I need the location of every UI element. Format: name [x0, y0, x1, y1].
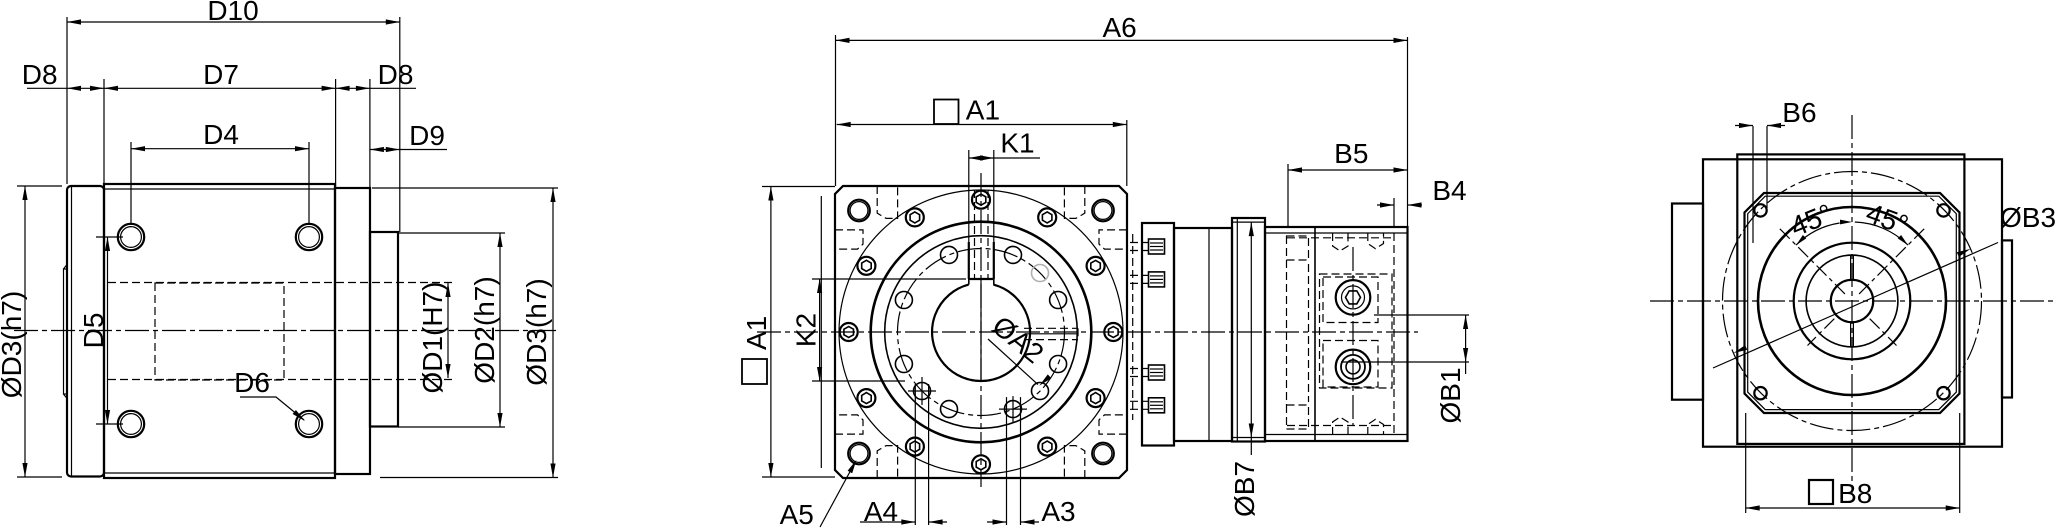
- svg-text:ØB7: ØB7: [1229, 461, 1260, 517]
- svg-text:D4: D4: [203, 119, 239, 150]
- svg-text:K2: K2: [791, 313, 822, 347]
- svg-text:ØB1: ØB1: [1435, 367, 1466, 423]
- svg-text:A4: A4: [864, 496, 898, 527]
- svg-text:D8: D8: [378, 59, 414, 90]
- svg-text:A1: A1: [741, 316, 772, 350]
- svg-text:B6: B6: [1782, 97, 1816, 128]
- svg-text:B4: B4: [1432, 175, 1466, 206]
- svg-text:ØD1(H7): ØD1(H7): [417, 281, 448, 393]
- svg-text:ØD3(h7): ØD3(h7): [0, 291, 27, 398]
- svg-text:ØD3(h7): ØD3(h7): [521, 278, 552, 385]
- svg-text:A3: A3: [1041, 496, 1075, 527]
- svg-text:D5: D5: [78, 313, 109, 349]
- svg-text:D9: D9: [409, 120, 445, 151]
- svg-text:A6: A6: [1102, 12, 1136, 43]
- svg-text:A1: A1: [966, 95, 1000, 126]
- svg-text:ØD2(h7): ØD2(h7): [469, 276, 500, 383]
- svg-text:D10: D10: [207, 0, 258, 26]
- svg-text:K1: K1: [1000, 128, 1034, 159]
- svg-text:D8: D8: [22, 59, 58, 90]
- svg-text:D7: D7: [203, 59, 239, 90]
- svg-text:B5: B5: [1334, 138, 1368, 169]
- svg-text:A5: A5: [780, 499, 814, 529]
- svg-text:D6: D6: [234, 367, 270, 398]
- svg-text:ØB3: ØB3: [2000, 202, 2056, 233]
- svg-text:B8: B8: [1838, 478, 1872, 509]
